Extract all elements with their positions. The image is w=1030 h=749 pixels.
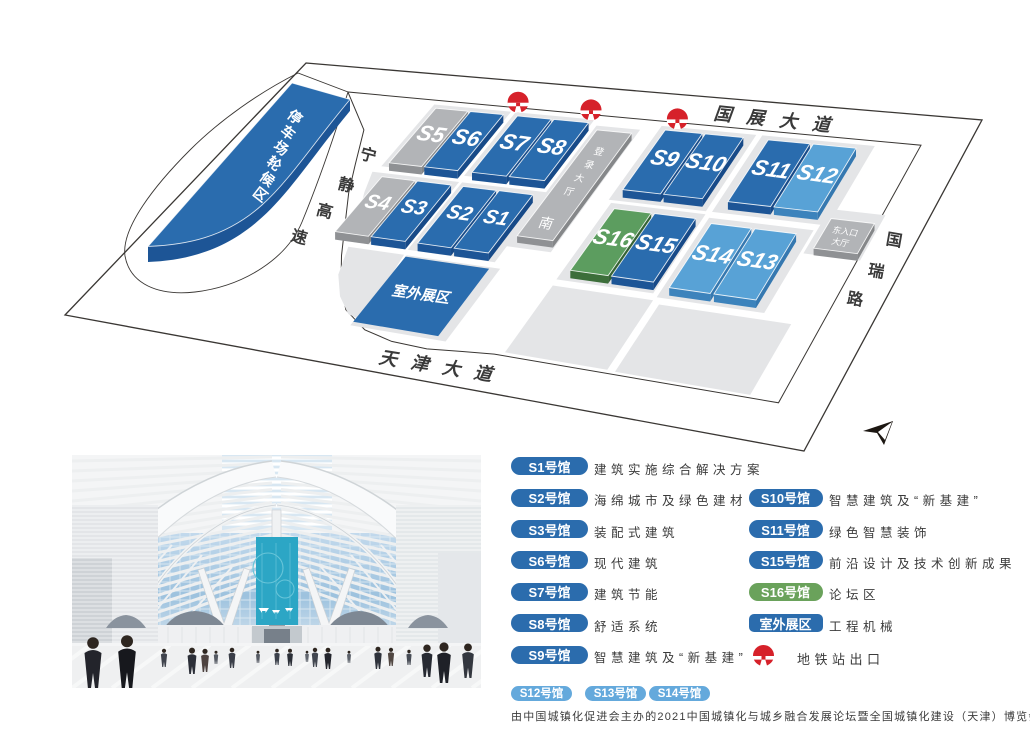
svg-text:国: 国 [885, 230, 904, 251]
